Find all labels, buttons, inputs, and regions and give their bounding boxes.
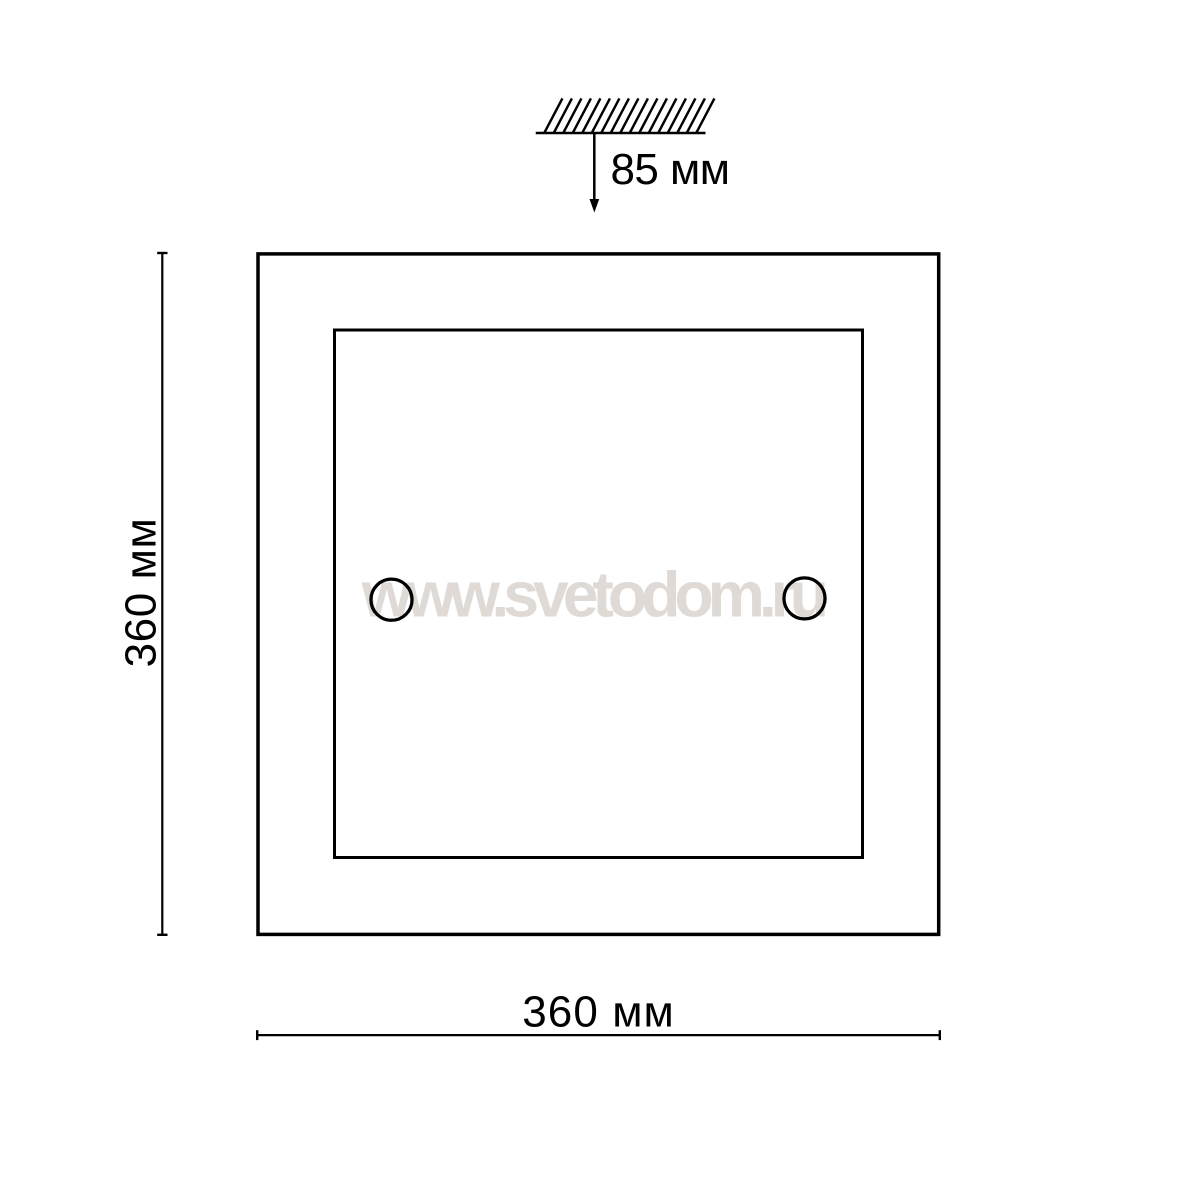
svg-text:360 мм: 360 мм <box>522 988 674 1037</box>
svg-text:360 мм: 360 мм <box>117 518 166 667</box>
svg-text:www.svetodom.ru: www.svetodom.ru <box>361 559 829 631</box>
svg-text:85 мм: 85 мм <box>611 145 731 194</box>
